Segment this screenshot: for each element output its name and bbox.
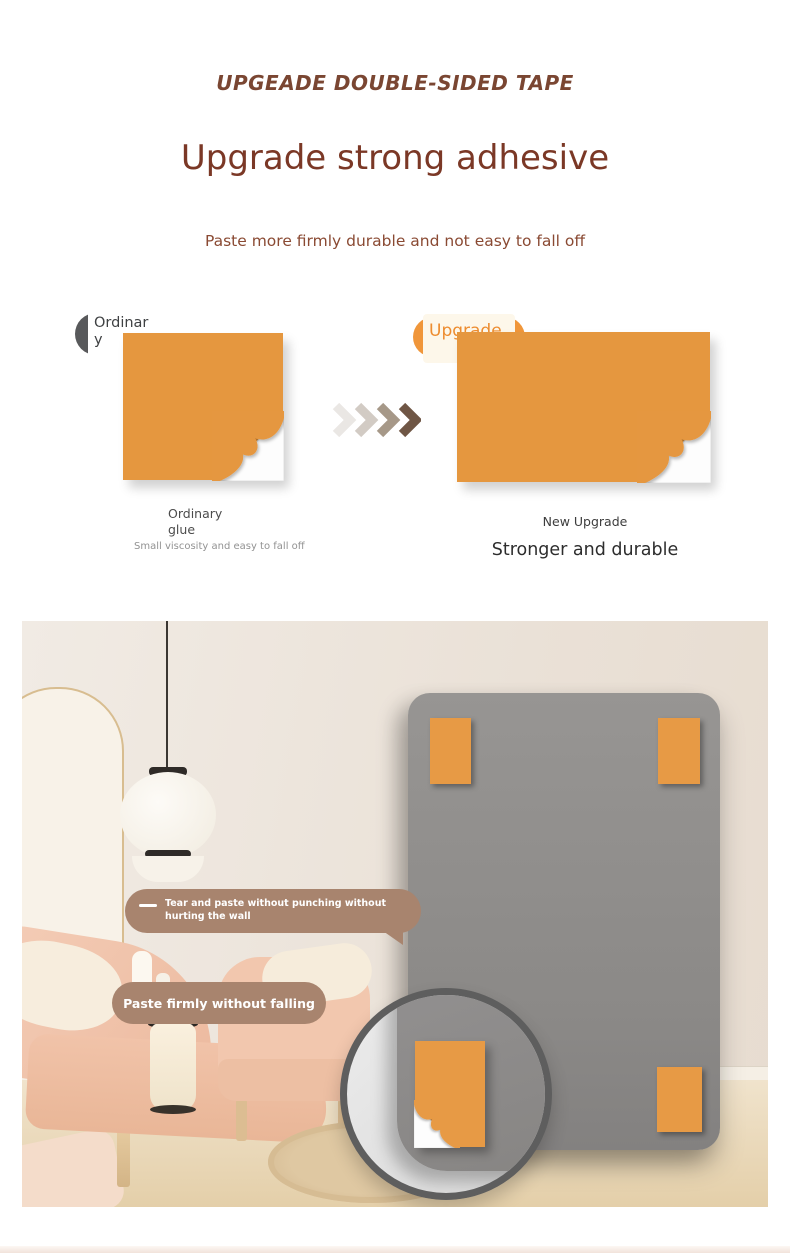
page-curl-icon bbox=[637, 411, 711, 483]
page-title: Upgrade strong adhesive bbox=[0, 138, 790, 178]
tape-piece-top-left bbox=[430, 718, 471, 784]
ordinary-tape-swatch bbox=[123, 333, 283, 480]
side-table-base bbox=[150, 1105, 196, 1114]
pendant-lamp-dome bbox=[132, 856, 204, 882]
ordinary-note: Small viscosity and easy to fall off bbox=[134, 541, 316, 554]
room-photo: Tear and paste without punching without … bbox=[22, 621, 768, 1207]
ordinary-caption: Ordinary glue bbox=[168, 506, 242, 539]
pendant-lamp-shade bbox=[120, 772, 216, 858]
page-curl-icon bbox=[212, 411, 284, 481]
page-curl-icon bbox=[414, 1100, 460, 1148]
side-table bbox=[150, 1023, 196, 1111]
tape-type-heading: UPGEADE DOUBLE-SIDED TAPE bbox=[0, 71, 790, 95]
speech-bubble-text: Paste firmly without falling bbox=[123, 996, 315, 1011]
armchair-left-leg bbox=[117, 1129, 130, 1187]
pendant-lamp-cord bbox=[166, 621, 168, 771]
speech-bubble-tear-paste: Tear and paste without punching without … bbox=[125, 889, 421, 933]
magnifier-loupe-icon bbox=[340, 988, 552, 1200]
upgrade-tape-swatch bbox=[457, 332, 710, 482]
next-section-edge bbox=[0, 1246, 790, 1253]
speech-bubble-paste-firmly: Paste firmly without falling bbox=[112, 982, 326, 1024]
upgrade-caption: New Upgrade bbox=[460, 514, 710, 529]
tape-piece-top-right bbox=[658, 718, 700, 784]
tape-piece-bottom-right bbox=[657, 1067, 702, 1132]
dash-icon bbox=[139, 904, 157, 907]
upgrade-tagline: Stronger and durable bbox=[430, 540, 740, 560]
page-subtitle: Paste more firmly durable and not easy t… bbox=[0, 232, 790, 250]
product-promo-page: UPGEADE DOUBLE-SIDED TAPE Upgrade strong… bbox=[0, 0, 790, 1253]
armchair-right-leg bbox=[236, 1099, 247, 1141]
chevron-right-arrows-icon bbox=[331, 398, 421, 442]
magnified-tape-piece bbox=[415, 1041, 485, 1147]
speech-bubble-text: Tear and paste without punching without … bbox=[165, 898, 407, 924]
